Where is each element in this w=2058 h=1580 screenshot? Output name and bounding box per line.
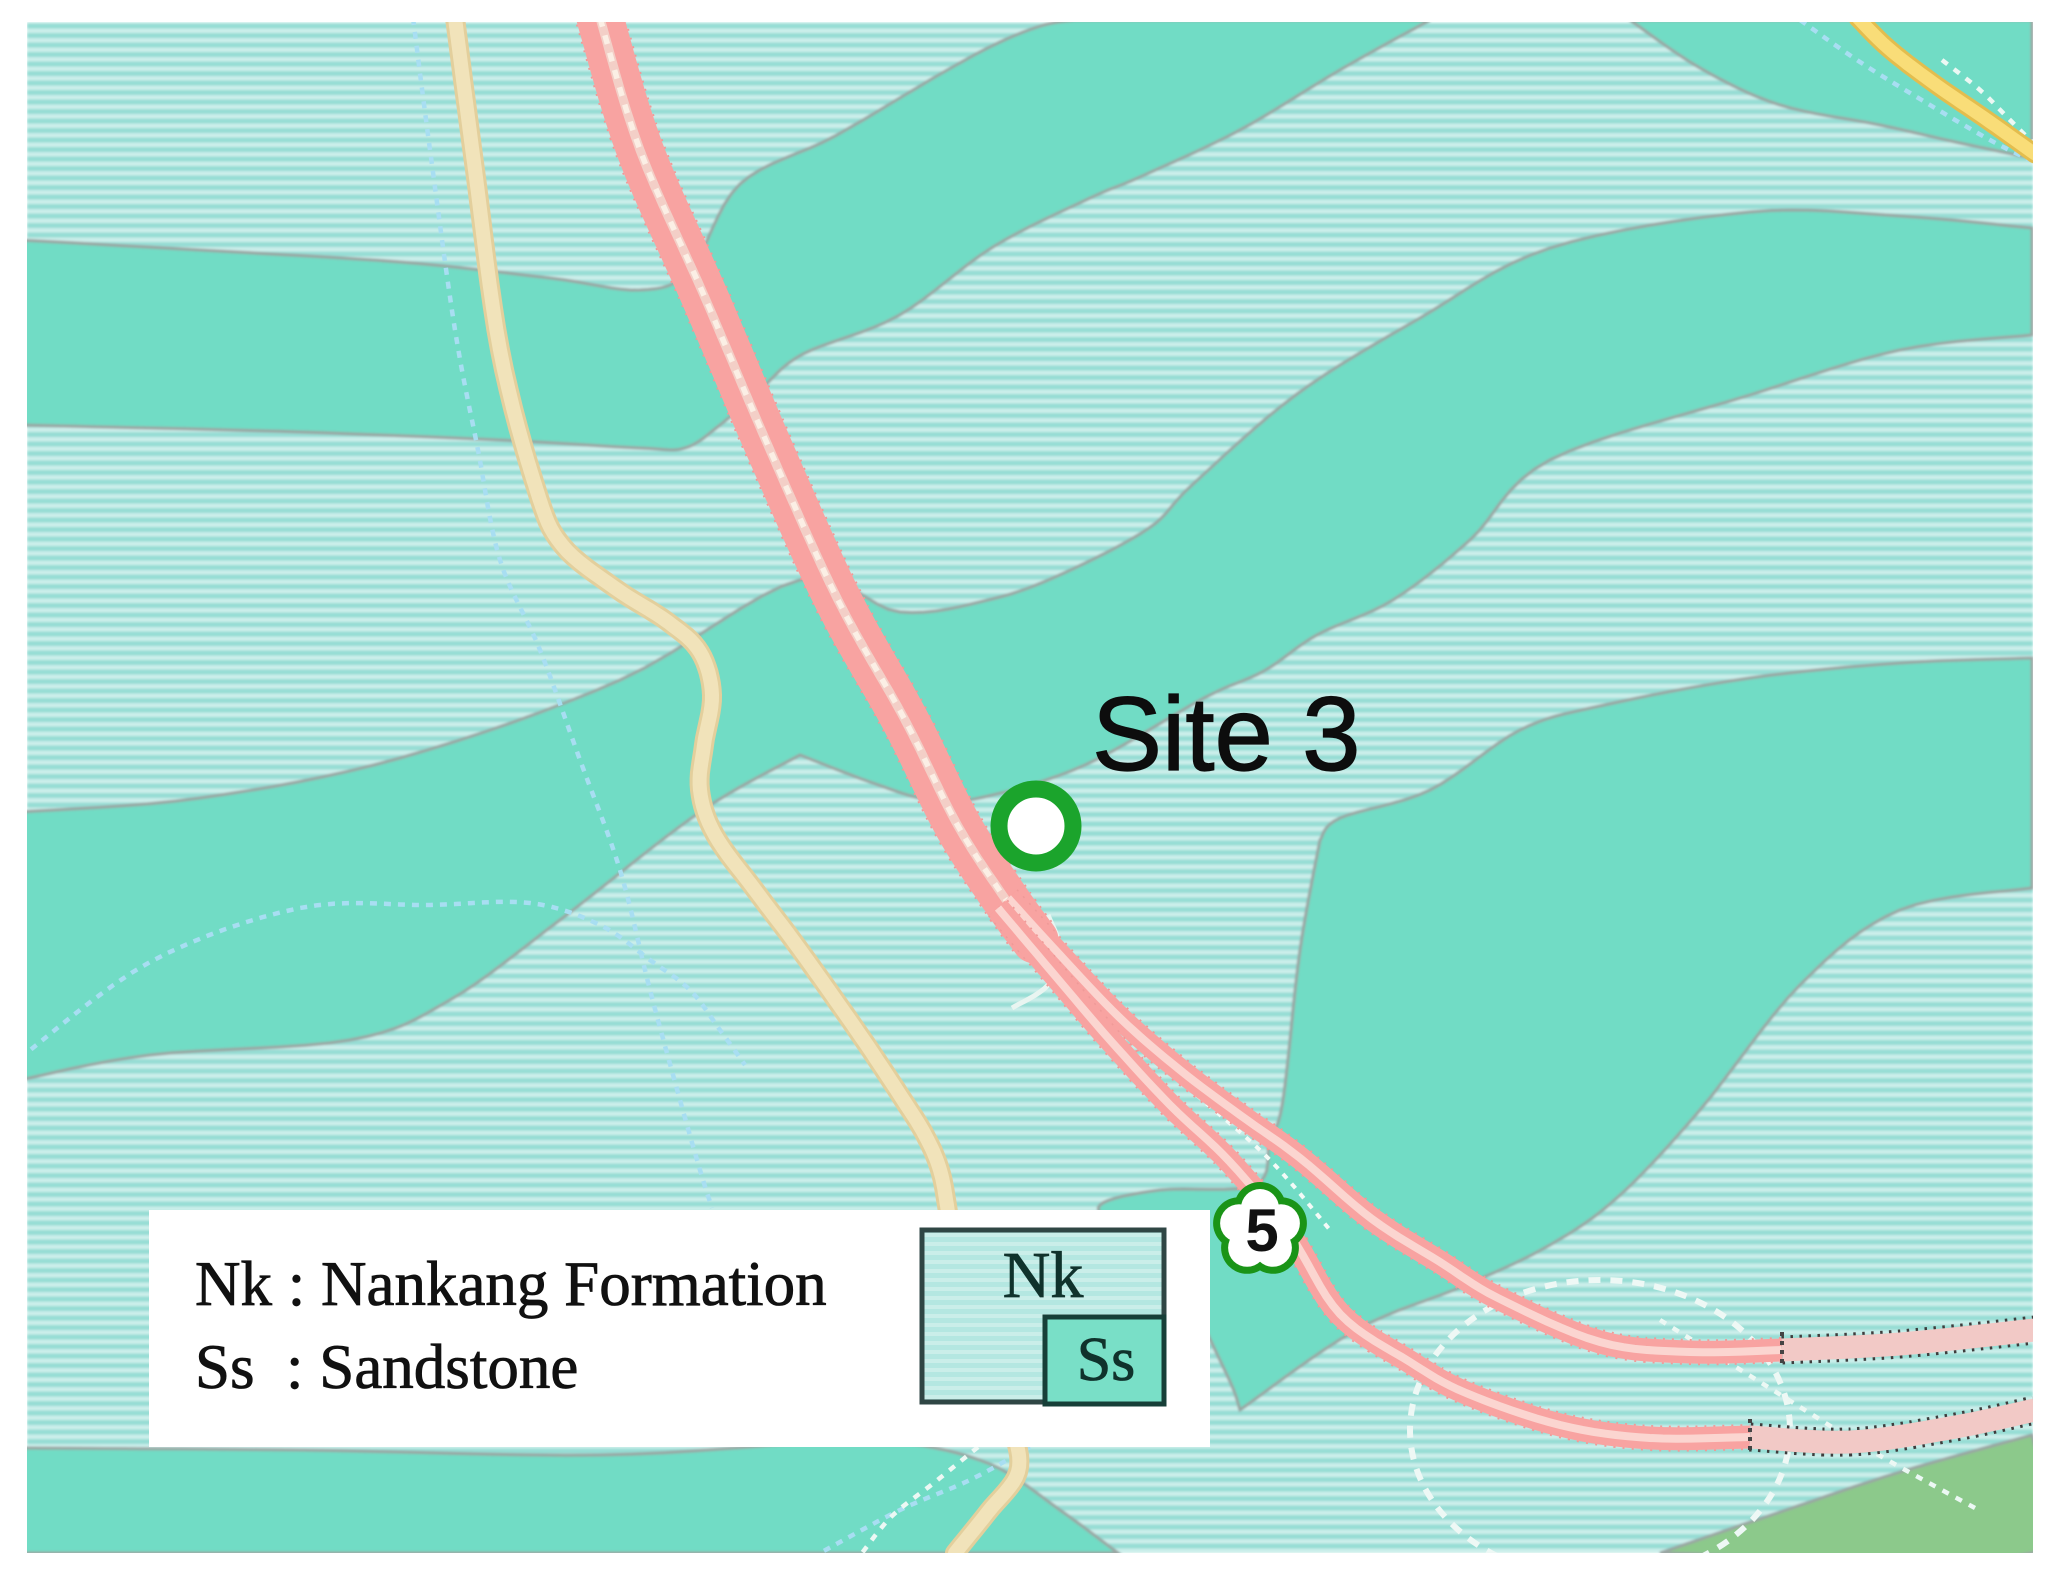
svg-text:Ss: Ss: [1077, 1326, 1136, 1394]
svg-text:Nk : Nankang Formation: Nk : Nankang Formation: [195, 1249, 827, 1319]
svg-text:Site 3: Site 3: [1092, 676, 1361, 793]
svg-text:5: 5: [1245, 1197, 1278, 1264]
svg-text:Ss : Sandstone: Ss : Sandstone: [195, 1332, 578, 1402]
svg-text:Nk: Nk: [1003, 1239, 1084, 1312]
